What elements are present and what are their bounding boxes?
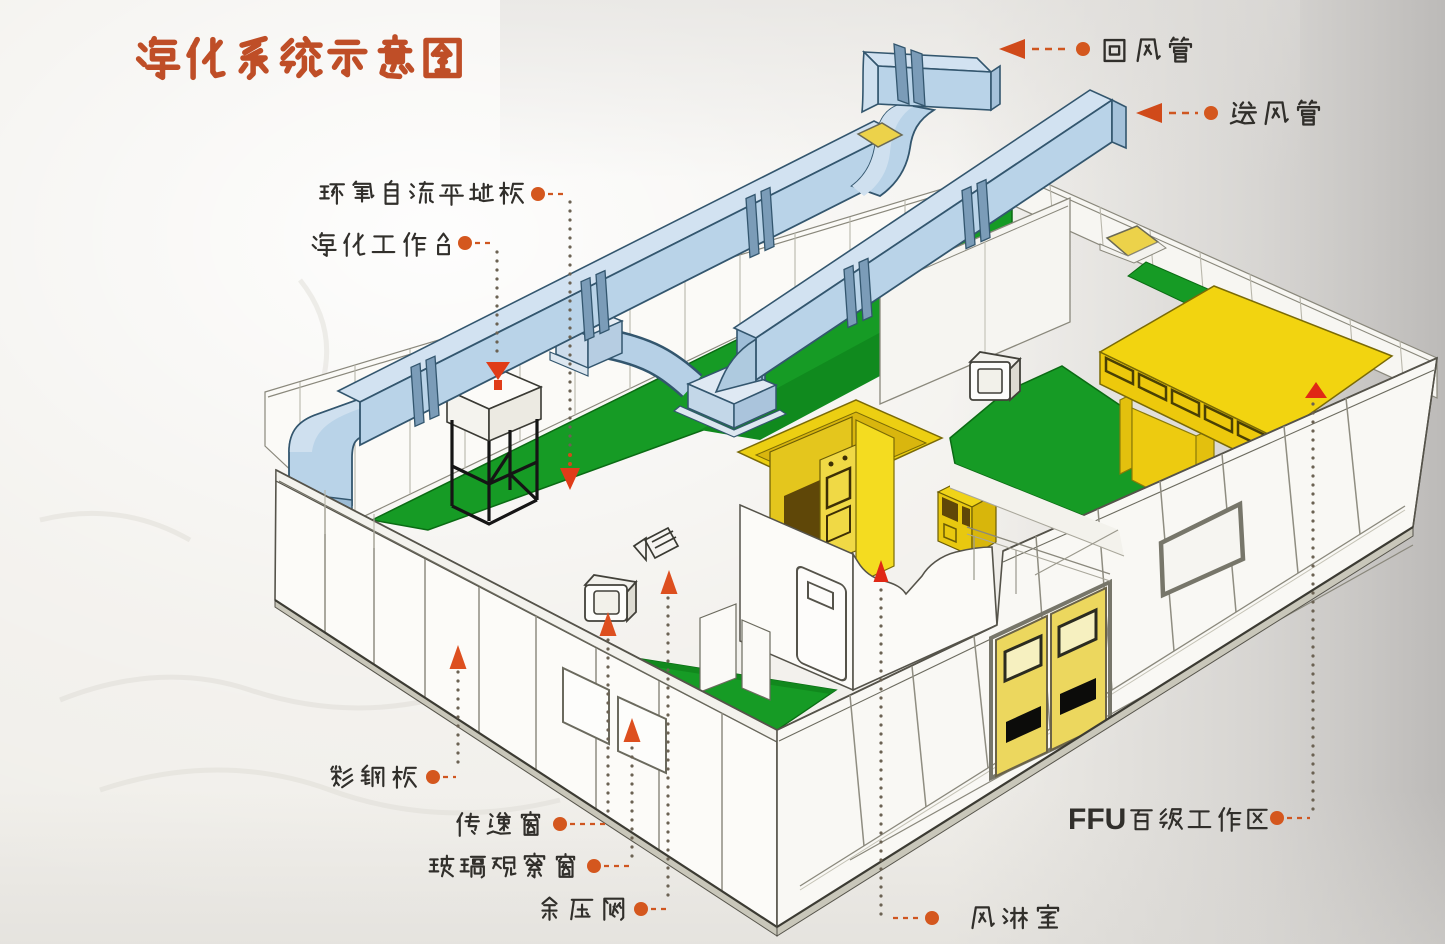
svg-text:FFU: FFU (1068, 803, 1126, 836)
